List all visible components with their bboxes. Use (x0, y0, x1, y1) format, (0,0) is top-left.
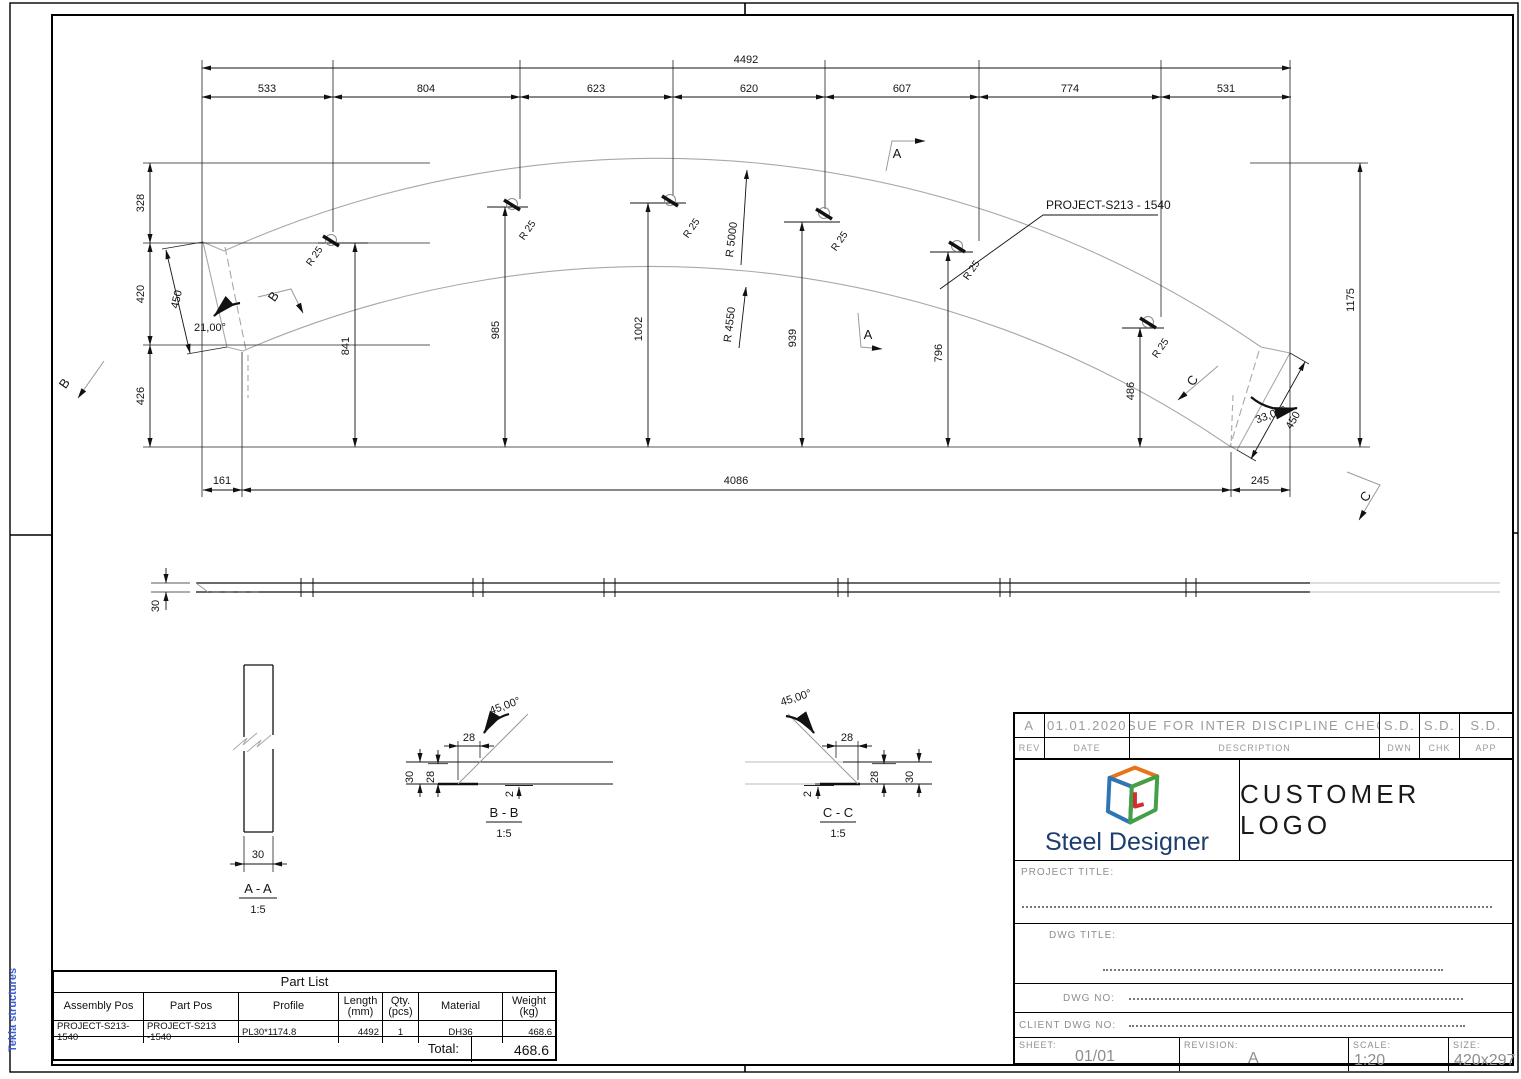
dimension-labels: 4492 533 804 623 620 607 774 531 328 420… (56, 54, 1374, 612)
dim-cc-angle: 45,00° (779, 688, 813, 709)
part-list-row: PROJECT-S213-1540 PROJECT-S213 -1540 PL3… (54, 1021, 555, 1037)
chk-header: CHK (1420, 738, 1460, 758)
dim-height: 939 (787, 329, 799, 347)
dim-segment: 623 (587, 83, 605, 95)
dim-left: 426 (135, 387, 147, 405)
dim-cc-t1: 28 (869, 771, 881, 783)
dim-height: 796 (933, 344, 945, 362)
col-material: Material (419, 993, 503, 1020)
part-list-header-row: Assembly Pos Part Pos Profile Length(mm)… (54, 993, 555, 1021)
section-mark-a: A (864, 327, 873, 342)
section-bb-scale: 1:5 (496, 828, 511, 840)
revision-value: A (1248, 1050, 1259, 1068)
dim-bb-t2: 28 (425, 771, 437, 783)
drawing-sheet: 4492 533 804 623 620 607 774 531 328 420… (0, 0, 1521, 1079)
dim-bottom: 161 (213, 475, 231, 487)
dim-segment: 533 (258, 83, 276, 95)
tekla-structures-watermark: Tekla structures (7, 964, 21, 1056)
section-aa-scale: 1:5 (250, 904, 265, 916)
section-mark-c: C (1356, 488, 1374, 504)
dimension-lines (150, 68, 1360, 490)
dim-bottom: 4086 (724, 475, 748, 487)
section-aa-title: A - A (244, 881, 272, 896)
steel-designer-logo: Steel Designer (1015, 760, 1240, 860)
scale-cell: SCALE: 1:20 (1349, 1038, 1449, 1071)
dim-bend-radius: R 25 (961, 258, 982, 282)
dim-bottom: 245 (1251, 475, 1269, 487)
dwn-value: S.D. (1380, 714, 1420, 737)
col-assembly-pos: Assembly Pos (54, 993, 144, 1020)
dim-left: 420 (135, 285, 147, 303)
dwg-no-field: DWG NO: (1015, 984, 1512, 1013)
dim-segment: 804 (417, 83, 435, 95)
total-value: 468.6 (471, 1037, 555, 1062)
project-title-label: PROJECT TITLE: (1021, 867, 1114, 878)
dwn-header: DWN (1380, 738, 1420, 758)
client-dwg-no-line (1129, 1024, 1465, 1027)
dim-segment: 607 (893, 83, 911, 95)
dwg-title-label: DWG TITLE: (1049, 930, 1116, 941)
app-header: APP (1460, 738, 1512, 758)
dim-height: 985 (490, 321, 502, 339)
dim-cc-t2: 30 (904, 771, 916, 783)
col-profile: Profile (239, 993, 339, 1020)
col-length: Length(mm) (339, 993, 383, 1020)
sheet-value: 01/01 (1075, 1048, 1115, 1066)
dim-bend-radius: R 25 (681, 216, 702, 240)
section-cc-title: C - C (823, 805, 853, 820)
part-label: PROJECT-S213 - 1540 (1046, 198, 1171, 212)
section-mark-a: A (893, 146, 902, 161)
section-labels: 30 A - A 1:5 45,00° 28 30 28 2 B - B 1:5… (244, 688, 916, 916)
extension-lines (143, 60, 1370, 497)
dim-cc-offset: 28 (841, 732, 853, 744)
part-list-total-row: Total: 468.6 (54, 1037, 555, 1062)
col-qty: Qty.(pcs) (383, 993, 419, 1020)
dim-bb-root: 2 (504, 791, 516, 797)
col-part-pos: Part Pos (144, 993, 239, 1020)
dim-end-width: 450 (169, 289, 185, 310)
dim-radius-outer: R 5000 (724, 221, 740, 258)
steel-designer-cube-icon (1087, 762, 1167, 832)
customer-logo-text: CUSTOMER LOGO (1240, 779, 1512, 841)
dwg-title-field: DWG TITLE: (1015, 924, 1512, 984)
section-cc-scale: 1:5 (830, 828, 845, 840)
section-mark-b: B (56, 376, 73, 392)
date-header: DATE (1045, 738, 1130, 758)
dim-bend-radius: R 25 (517, 218, 538, 242)
app-value: S.D. (1460, 714, 1512, 737)
project-title-line (1022, 905, 1492, 908)
dim-height: 841 (340, 337, 352, 355)
section-mark-b: B (265, 289, 282, 305)
size-cell: SIZE: 420x297 (1449, 1038, 1512, 1071)
description-value: ISSUE FOR INTER DISCIPLINE CHECK (1130, 714, 1380, 737)
footer-row: SHEET: 01/01 REVISION: A SCALE: 1:20 SIZ… (1015, 1038, 1512, 1071)
customer-logo-cell: CUSTOMER LOGO (1240, 760, 1512, 860)
chk-value: S.D. (1420, 714, 1460, 737)
dim-left: 328 (135, 194, 147, 212)
revision-header-row: REV DATE DESCRIPTION DWN CHK APP (1015, 738, 1512, 760)
section-mark-c: C (1183, 372, 1201, 388)
dim-segment: 774 (1061, 83, 1079, 95)
logo-row: Steel Designer CUSTOMER LOGO (1015, 760, 1512, 861)
dim-radius-inner: R 4550 (722, 306, 738, 343)
dim-angle: 21,00° (194, 322, 226, 334)
dim-bb-offset: 28 (463, 732, 475, 744)
dim-right-height: 1175 (1345, 288, 1357, 312)
title-block: A 01.01.2020 ISSUE FOR INTER DISCIPLINE … (1013, 712, 1514, 1065)
part-list-table: Part List Assembly Pos Part Pos Profile … (52, 970, 557, 1061)
revision-cell: REVISION: A (1180, 1038, 1349, 1071)
description-header: DESCRIPTION (1130, 738, 1380, 758)
rev-header: REV (1015, 738, 1045, 758)
section-aa (230, 665, 287, 898)
dwg-no-label: DWG NO: (1063, 993, 1115, 1004)
client-dwg-no-field: CLIENT DWG NO: (1015, 1013, 1512, 1038)
revision-value-row: A 01.01.2020 ISSUE FOR INTER DISCIPLINE … (1015, 714, 1512, 738)
dim-bb-t1: 30 (404, 771, 416, 783)
dim-height: 1002 (633, 317, 645, 341)
part-list-title: Part List (54, 972, 555, 993)
dim-cc-root: 2 (802, 791, 814, 797)
sheet-cell: SHEET: 01/01 (1015, 1038, 1180, 1071)
client-dwg-no-label: CLIENT DWG NO: (1019, 1020, 1116, 1031)
size-value: 420x297 (1454, 1052, 1515, 1070)
project-title-field: PROJECT TITLE: (1015, 861, 1512, 924)
dim-segment: 620 (740, 83, 758, 95)
section-bb-title: B - B (490, 805, 519, 820)
dwg-no-line (1129, 997, 1463, 1000)
dwg-title-line (1103, 968, 1443, 971)
dim-bend-radius: R 25 (829, 229, 850, 253)
dim-height: 486 (1125, 382, 1137, 400)
date-value: 01.01.2020 (1045, 714, 1130, 737)
dim-bend-radius: R 25 (1150, 336, 1171, 360)
rev-value: A (1015, 714, 1045, 737)
edge-view-strip (151, 568, 1500, 610)
dim-aa-width: 30 (252, 849, 264, 861)
dim-bend-radius: R 25 (304, 244, 325, 268)
steel-designer-text: Steel Designer (1015, 828, 1239, 857)
total-label: Total: (428, 1041, 459, 1056)
scale-value: 1:20 (1354, 1052, 1385, 1070)
col-weight: Weight(kg) (503, 993, 555, 1020)
dim-total: 4492 (734, 54, 758, 66)
dim-bb-angle: 45,00° (488, 695, 522, 717)
dim-thickness: 30 (150, 600, 162, 612)
dim-segment: 531 (1217, 83, 1235, 95)
